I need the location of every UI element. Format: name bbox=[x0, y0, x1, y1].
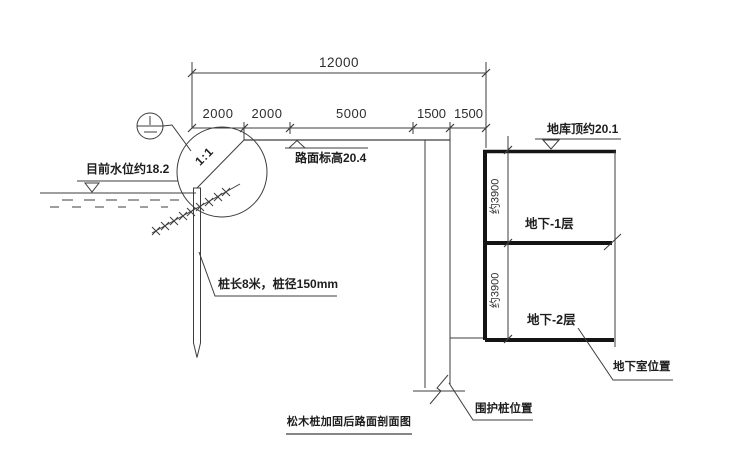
detail-reference-bubble bbox=[137, 113, 191, 151]
dim-segment-2: 2000 bbox=[244, 107, 290, 122]
dim-basement-height-1: 约3900 bbox=[490, 166, 503, 226]
basement-floor-2-label: 地下-2层 bbox=[527, 313, 576, 327]
ground-hatch-line bbox=[152, 184, 240, 235]
drawing-title: 松木桩加固后路面剖面图 bbox=[286, 416, 412, 429]
break-symbol bbox=[430, 375, 448, 404]
retaining-pile bbox=[413, 125, 465, 404]
basement-floor-1-label: 地下-1层 bbox=[525, 217, 574, 231]
dim-segment-5: 1500 bbox=[450, 107, 487, 122]
water-level-symbol bbox=[40, 181, 196, 207]
dim-segment-3: 5000 bbox=[290, 107, 413, 122]
dim-segment-4: 1500 bbox=[413, 107, 450, 122]
water-dashes bbox=[50, 200, 179, 207]
dimension-tick-marks bbox=[188, 69, 490, 132]
garage-roof-elevation-symbol bbox=[535, 139, 621, 149]
basement-location-label: 地下室位置 bbox=[613, 361, 671, 374]
section-drawing: 12000 2000 2000 5000 1500 1500 约3900 约39… bbox=[0, 0, 731, 459]
water-level-label: 目前水位约18.2 bbox=[86, 163, 169, 177]
dim-total-width: 12000 bbox=[192, 55, 486, 71]
horizontal-dimension-lines bbox=[188, 62, 490, 148]
pine-pile bbox=[194, 188, 201, 358]
dim-basement-height-2: 约3900 bbox=[490, 260, 503, 320]
road-elevation-symbol bbox=[285, 141, 368, 149]
pile-spec-label: 桩长8米，桩径150mm bbox=[218, 278, 338, 292]
garage-roof-label: 地库顶约20.1 bbox=[547, 123, 618, 137]
road-elevation-label: 路面标高20.4 bbox=[295, 152, 366, 166]
retaining-pile-label: 围护桩位置 bbox=[475, 403, 533, 416]
detail-circle bbox=[177, 127, 267, 217]
dim-segment-1: 2000 bbox=[192, 107, 244, 122]
